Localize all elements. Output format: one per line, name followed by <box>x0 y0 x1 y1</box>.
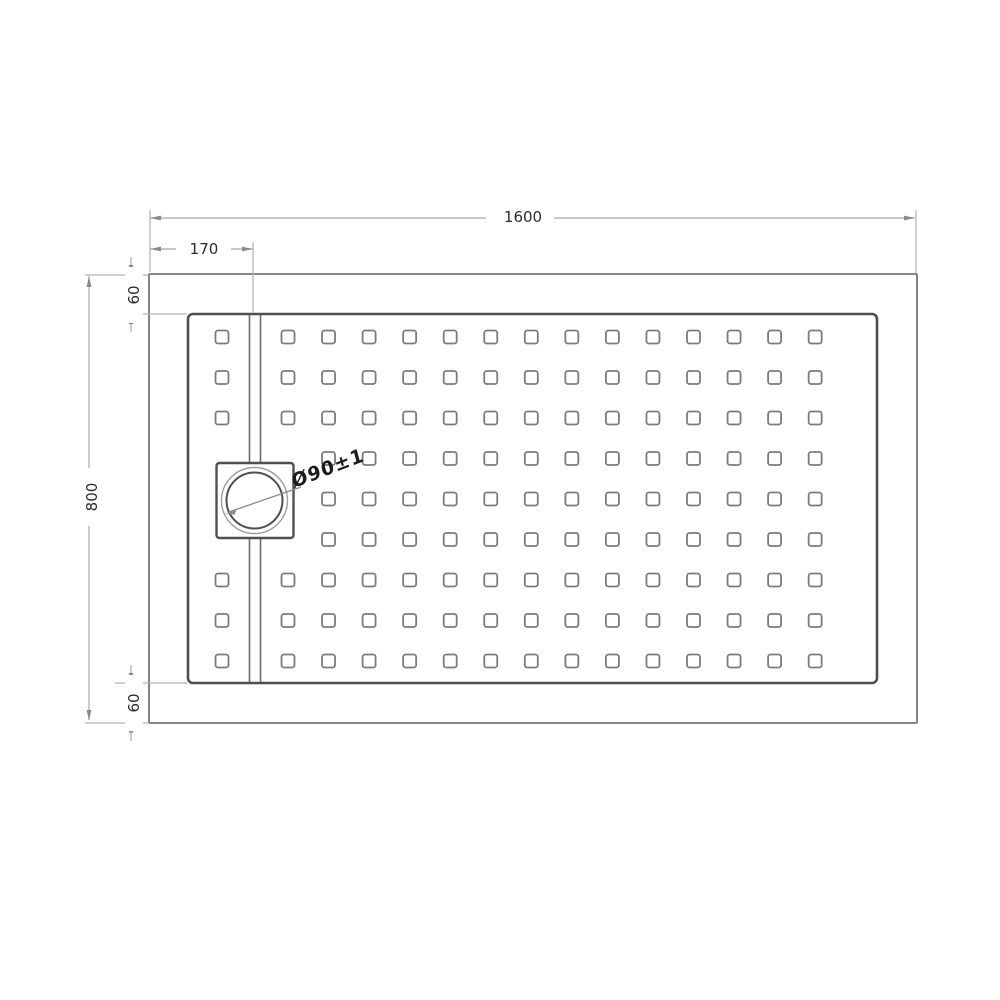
tray-hole <box>525 493 538 506</box>
tray-hole <box>444 533 457 546</box>
tray-hole <box>606 614 619 627</box>
tray-hole <box>687 331 700 344</box>
tray-hole <box>646 493 659 506</box>
drawing-linework <box>0 0 1000 1000</box>
tray-hole <box>444 371 457 384</box>
tray-hole <box>768 493 781 506</box>
tray-hole <box>687 614 700 627</box>
tray-hole <box>322 412 335 425</box>
tray-hole <box>687 371 700 384</box>
tray-hole <box>606 533 619 546</box>
tray-hole <box>282 331 295 344</box>
tray-hole <box>363 655 376 668</box>
tray-hole <box>728 331 741 344</box>
tray-hole <box>216 614 229 627</box>
tray-hole <box>565 574 578 587</box>
tray-hole <box>565 533 578 546</box>
tray-hole <box>525 452 538 465</box>
tray-hole <box>444 574 457 587</box>
tray-hole <box>646 371 659 384</box>
tray-hole <box>687 533 700 546</box>
tray-hole <box>606 331 619 344</box>
tray-hole <box>646 412 659 425</box>
tray-hole <box>728 574 741 587</box>
tray-hole <box>687 655 700 668</box>
tray-hole <box>687 574 700 587</box>
technical-drawing-canvas: 1600 170 800 60 60 Ø90±1 <box>0 0 1000 1000</box>
tray-hole <box>646 655 659 668</box>
tray-hole <box>809 614 822 627</box>
tray-hole <box>444 655 457 668</box>
tray-hole <box>606 493 619 506</box>
tray-hole <box>565 493 578 506</box>
tray-hole <box>809 331 822 344</box>
tray-hole <box>363 533 376 546</box>
tray-hole <box>565 452 578 465</box>
tray-hole <box>525 614 538 627</box>
tray-hole <box>768 452 781 465</box>
tray-hole <box>216 412 229 425</box>
tray-hole <box>484 574 497 587</box>
tray-hole <box>768 331 781 344</box>
dimension-label-overall-depth: 800 <box>83 469 101 525</box>
tray-hole <box>216 655 229 668</box>
tray-hole <box>403 533 416 546</box>
tray-hole <box>403 614 416 627</box>
tray-hole <box>809 574 822 587</box>
tray-hole <box>484 331 497 344</box>
tray-hole <box>525 655 538 668</box>
dimension-label-drain-offset: 170 <box>177 240 231 258</box>
arrowhead-right <box>904 216 915 221</box>
tray-hole <box>768 412 781 425</box>
dimension-label-rim-top: 60 <box>125 267 143 323</box>
tray-hole <box>484 614 497 627</box>
tray-hole <box>809 452 822 465</box>
tray-hole <box>216 331 229 344</box>
tray-hole <box>768 574 781 587</box>
tray-hole <box>646 614 659 627</box>
tray-hole <box>728 371 741 384</box>
tray-hole <box>322 655 335 668</box>
tray-hole <box>484 655 497 668</box>
tray-hole <box>403 574 416 587</box>
tray-hole <box>606 371 619 384</box>
tray-hole <box>484 493 497 506</box>
tray-hole <box>525 574 538 587</box>
dimension-label-rim-bottom: 60 <box>125 675 143 731</box>
tray-hole <box>728 493 741 506</box>
tray-hole <box>809 655 822 668</box>
tray-hole <box>363 371 376 384</box>
tray-hole <box>216 574 229 587</box>
tray-hole <box>606 655 619 668</box>
tray-hole <box>403 452 416 465</box>
tray-hole <box>282 655 295 668</box>
tray-hole <box>322 533 335 546</box>
tray-hole <box>728 533 741 546</box>
arrowhead-down <box>87 710 92 721</box>
tray-hole <box>768 614 781 627</box>
tray-hole <box>606 574 619 587</box>
tray-hole <box>322 331 335 344</box>
tray-hole <box>322 574 335 587</box>
tray-hole <box>282 574 295 587</box>
tray-hole <box>606 412 619 425</box>
tray-hole <box>525 371 538 384</box>
tray-hole <box>216 371 229 384</box>
tray-hole <box>809 412 822 425</box>
tray-hole <box>606 452 619 465</box>
tray-hole <box>687 412 700 425</box>
tray-hole <box>322 371 335 384</box>
tray-hole <box>687 493 700 506</box>
tray-hole <box>484 412 497 425</box>
arrowhead-right <box>242 247 253 252</box>
tray-hole <box>728 614 741 627</box>
tray-hole <box>444 614 457 627</box>
arrowhead-left <box>150 247 161 252</box>
tray-hole <box>403 655 416 668</box>
tray-hole <box>403 412 416 425</box>
tray-hole <box>444 331 457 344</box>
tray-hole <box>768 371 781 384</box>
tray-hole <box>728 655 741 668</box>
tray-hole <box>282 614 295 627</box>
tray-hole <box>809 533 822 546</box>
tray-hole <box>525 533 538 546</box>
tray-hole <box>728 412 741 425</box>
tray-hole <box>809 371 822 384</box>
tray-hole <box>728 452 741 465</box>
tray-hole <box>403 331 416 344</box>
tray-hole <box>322 614 335 627</box>
tray-hole <box>565 371 578 384</box>
tray-hole <box>809 493 822 506</box>
tray-hole <box>484 371 497 384</box>
tray-hole <box>646 452 659 465</box>
tray-hole <box>525 331 538 344</box>
dimension-label-overall-width: 1600 <box>494 208 552 226</box>
arrowhead-left <box>150 216 161 221</box>
tray-hole <box>403 493 416 506</box>
tray-hole <box>322 493 335 506</box>
tray-hole <box>444 493 457 506</box>
tray-hole <box>646 574 659 587</box>
tray-hole <box>363 574 376 587</box>
tray-hole <box>525 412 538 425</box>
tray-hole <box>444 452 457 465</box>
tray-hole <box>768 655 781 668</box>
tray-hole <box>282 412 295 425</box>
tray-hole <box>363 331 376 344</box>
tray-hole <box>363 493 376 506</box>
tray-hole <box>646 533 659 546</box>
tray-hole <box>565 412 578 425</box>
tray-hole <box>565 331 578 344</box>
tray-hole <box>403 371 416 384</box>
tray-hole <box>363 614 376 627</box>
tray-hole <box>565 655 578 668</box>
tray-hole <box>646 331 659 344</box>
arrowhead-up <box>87 276 92 287</box>
tray-hole <box>484 452 497 465</box>
tray-hole <box>768 533 781 546</box>
tray-hole <box>565 614 578 627</box>
tray-hole <box>282 371 295 384</box>
tray-hole <box>444 412 457 425</box>
tray-hole <box>484 533 497 546</box>
tray-hole <box>687 452 700 465</box>
tray-hole <box>363 412 376 425</box>
